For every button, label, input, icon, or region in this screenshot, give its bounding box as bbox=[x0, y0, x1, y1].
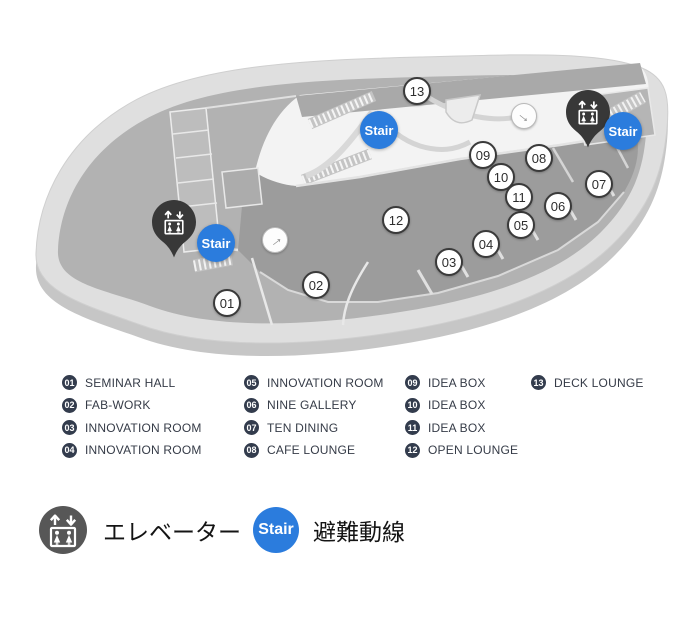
map-key: エレベーター Stair 避難動線 bbox=[39, 506, 405, 554]
floor-plan: Stair Stair Stair → → 01 02 03 04 05 06 … bbox=[0, 0, 682, 365]
arrow-se-icon: → bbox=[513, 105, 534, 126]
legend-item-label: INNOVATION ROOM bbox=[267, 376, 384, 390]
direction-arrow-icon: → bbox=[262, 227, 288, 253]
legend-item: 09 IDEA BOX bbox=[405, 375, 518, 390]
legend-item: 11 IDEA BOX bbox=[405, 420, 518, 435]
legend-item: 04 INNOVATION ROOM bbox=[62, 443, 202, 458]
stair-badge-left[interactable]: Stair bbox=[197, 224, 235, 262]
map-marker-08[interactable]: 08 bbox=[525, 144, 553, 172]
map-marker-12[interactable]: 12 bbox=[382, 206, 410, 234]
legend-number-badge: 02 bbox=[62, 398, 77, 413]
pin-shape bbox=[152, 200, 196, 258]
legend-number-badge: 12 bbox=[405, 443, 420, 458]
legend-column-3: 09 IDEA BOX 10 IDEA BOX 11 IDEA BOX 12 O… bbox=[405, 375, 518, 458]
legend-number-badge: 04 bbox=[62, 443, 77, 458]
legend-item-label: SEMINAR HALL bbox=[85, 376, 175, 390]
map-marker-06[interactable]: 06 bbox=[544, 192, 572, 220]
legend-number-badge: 07 bbox=[244, 420, 259, 435]
legend-item: 05 INNOVATION ROOM bbox=[244, 375, 384, 390]
map-marker-13[interactable]: 13 bbox=[403, 77, 431, 105]
pin-shape bbox=[566, 90, 610, 148]
legend-number-badge: 10 bbox=[405, 398, 420, 413]
evacuation-route-label: 避難動線 bbox=[313, 513, 405, 547]
legend-item-label: FAB-WORK bbox=[85, 398, 151, 412]
legend-item: 07 TEN DINING bbox=[244, 420, 384, 435]
legend-item-label: CAFE LOUNGE bbox=[267, 443, 355, 457]
floor-map-page: Stair Stair Stair → → 01 02 03 04 05 06 … bbox=[0, 0, 682, 617]
legend-number-badge: 03 bbox=[62, 420, 77, 435]
legend-number-badge: 13 bbox=[531, 375, 546, 390]
legend-number-badge: 01 bbox=[62, 375, 77, 390]
legend-item: 02 FAB-WORK bbox=[62, 398, 202, 413]
elevator-pin-right[interactable] bbox=[565, 89, 611, 149]
legend-item: 13 DECK LOUNGE bbox=[531, 375, 644, 390]
legend-column-4: 13 DECK LOUNGE bbox=[531, 375, 644, 390]
arrow-ne-icon: → bbox=[264, 229, 285, 250]
stair-badge-right[interactable]: Stair bbox=[604, 112, 642, 150]
legend-item-label: IDEA BOX bbox=[428, 376, 486, 390]
legend-number-badge: 09 bbox=[405, 375, 420, 390]
legend-item: 10 IDEA BOX bbox=[405, 398, 518, 413]
legend-item-label: INNOVATION ROOM bbox=[85, 443, 202, 457]
legend-item: 12 OPEN LOUNGE bbox=[405, 443, 518, 458]
map-marker-05[interactable]: 05 bbox=[507, 211, 535, 239]
legend-column-2: 05 INNOVATION ROOM 06 NINE GALLERY 07 TE… bbox=[244, 375, 384, 458]
legend-item-label: TEN DINING bbox=[267, 421, 338, 435]
map-marker-07[interactable]: 07 bbox=[585, 170, 613, 198]
stair-key-badge: Stair bbox=[253, 507, 299, 553]
legend-item-label: IDEA BOX bbox=[428, 421, 486, 435]
legend-item: 08 CAFE LOUNGE bbox=[244, 443, 384, 458]
legend-item-label: INNOVATION ROOM bbox=[85, 421, 202, 435]
legend-item-label: IDEA BOX bbox=[428, 398, 486, 412]
legend-item-label: OPEN LOUNGE bbox=[428, 443, 518, 457]
map-marker-11[interactable]: 11 bbox=[505, 183, 533, 211]
legend-column-1: 01 SEMINAR HALL 02 FAB-WORK 03 INNOVATIO… bbox=[62, 375, 202, 458]
legend-number-badge: 08 bbox=[244, 443, 259, 458]
legend-number-badge: 11 bbox=[405, 420, 420, 435]
floor-plan-drawing bbox=[0, 0, 682, 365]
legend: 01 SEMINAR HALL 02 FAB-WORK 03 INNOVATIO… bbox=[0, 375, 682, 467]
legend-number-badge: 05 bbox=[244, 375, 259, 390]
stair-badge-top[interactable]: Stair bbox=[360, 111, 398, 149]
map-marker-04[interactable]: 04 bbox=[472, 230, 500, 258]
map-marker-03[interactable]: 03 bbox=[435, 248, 463, 276]
legend-item: 01 SEMINAR HALL bbox=[62, 375, 202, 390]
legend-item-label: DECK LOUNGE bbox=[554, 376, 644, 390]
map-marker-01[interactable]: 01 bbox=[213, 289, 241, 317]
elevator-key-label: エレベーター bbox=[103, 513, 241, 547]
elevator-icon bbox=[39, 506, 87, 554]
legend-item: 03 INNOVATION ROOM bbox=[62, 420, 202, 435]
map-marker-02[interactable]: 02 bbox=[302, 271, 330, 299]
legend-item-label: NINE GALLERY bbox=[267, 398, 357, 412]
legend-number-badge: 06 bbox=[244, 398, 259, 413]
legend-item: 06 NINE GALLERY bbox=[244, 398, 384, 413]
elevator-pin-left[interactable] bbox=[151, 199, 197, 259]
direction-arrow-icon: → bbox=[511, 103, 537, 129]
